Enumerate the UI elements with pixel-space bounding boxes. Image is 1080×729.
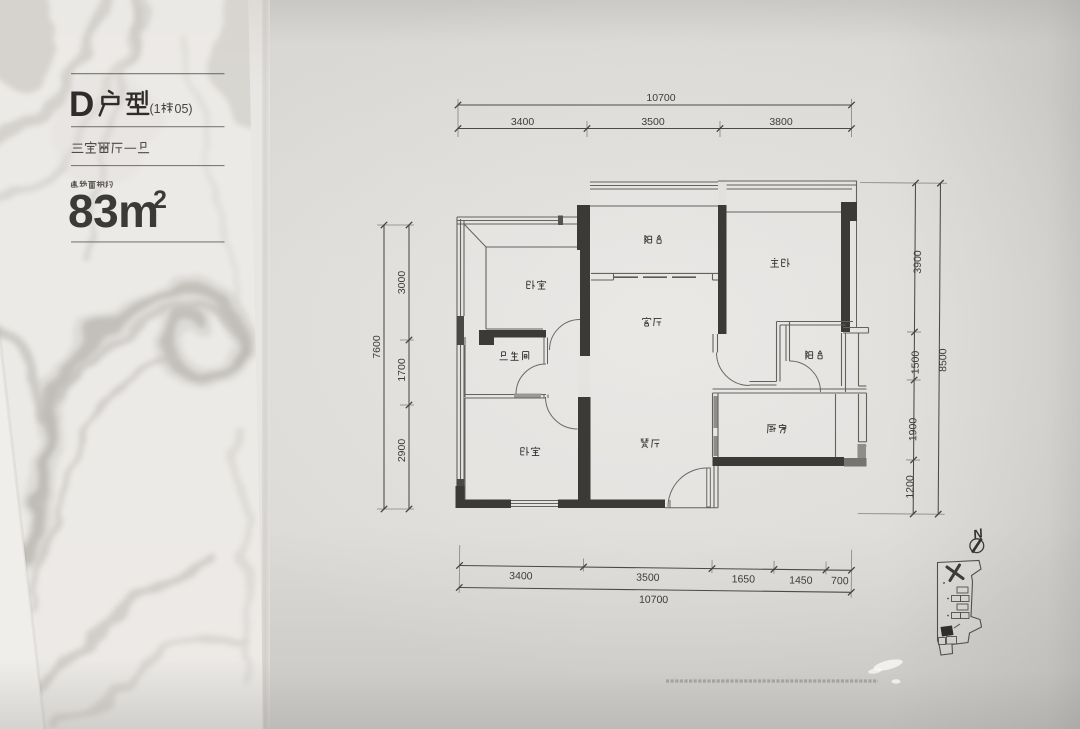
svg-text:2: 2	[153, 186, 167, 214]
svg-text:D: D	[69, 85, 94, 124]
svg-text:10700: 10700	[646, 92, 675, 104]
svg-text:3500: 3500	[641, 116, 665, 128]
svg-text:8500: 8500	[937, 348, 949, 372]
svg-text:(1: (1	[150, 102, 161, 116]
svg-text:3400: 3400	[509, 570, 533, 582]
svg-text:1500: 1500	[910, 351, 922, 375]
svg-text:1700: 1700	[396, 358, 408, 382]
svg-text:3800: 3800	[769, 116, 793, 128]
svg-text:1900: 1900	[907, 418, 919, 442]
svg-text:700: 700	[831, 575, 849, 587]
svg-text:3900: 3900	[912, 250, 924, 274]
svg-text:1450: 1450	[789, 575, 813, 587]
svg-text:1650: 1650	[732, 573, 756, 585]
svg-text:1200: 1200	[904, 475, 916, 499]
svg-text:3400: 3400	[511, 116, 535, 128]
svg-text:05): 05)	[175, 102, 193, 116]
svg-text:83m: 83m	[68, 185, 159, 237]
svg-text:7600: 7600	[371, 335, 383, 359]
svg-text:3500: 3500	[636, 572, 660, 584]
svg-text:10700: 10700	[639, 594, 669, 606]
svg-text:2900: 2900	[396, 439, 408, 463]
svg-text:3000: 3000	[396, 271, 408, 295]
